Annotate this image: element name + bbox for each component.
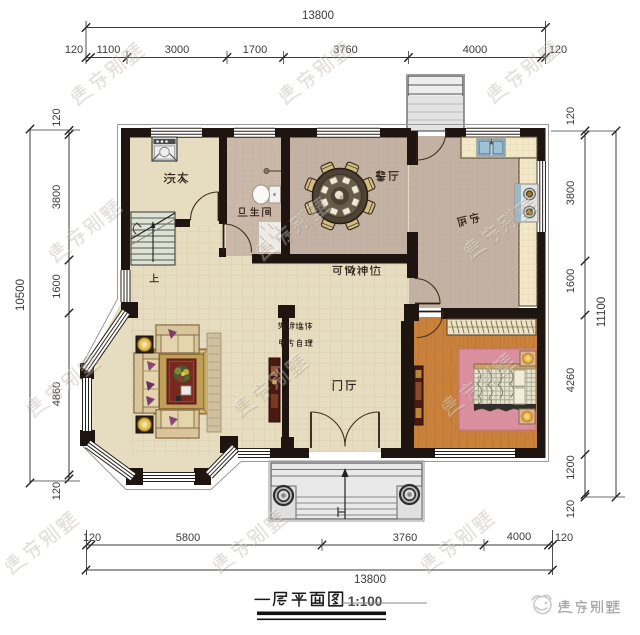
svg-text:3000: 3000 [165,44,189,56]
svg-text:120: 120 [83,532,101,544]
svg-text:10500: 10500 [15,279,27,311]
svg-text:120: 120 [565,107,577,125]
svg-text:3800: 3800 [565,181,577,205]
svg-text:4000: 4000 [507,531,531,543]
svg-text:120: 120 [555,532,573,544]
svg-text:1600: 1600 [565,269,577,293]
svg-text:120: 120 [51,482,63,500]
svg-text:1200: 1200 [565,455,577,479]
svg-text:4000: 4000 [463,44,487,56]
svg-text:3760: 3760 [393,532,417,544]
svg-text:120: 120 [65,44,83,56]
svg-text:120: 120 [51,108,63,126]
svg-text:13800: 13800 [354,574,386,586]
svg-text:3800: 3800 [51,185,63,209]
svg-text:4260: 4260 [565,368,577,392]
svg-text:1600: 1600 [51,274,63,298]
svg-text:1:100: 1:100 [348,594,383,609]
svg-text:5800: 5800 [176,532,200,544]
svg-text:1700: 1700 [243,44,267,56]
svg-text:11100: 11100 [596,297,608,327]
svg-text:120: 120 [565,500,577,518]
svg-text:1100: 1100 [97,44,121,56]
svg-text:13800: 13800 [302,10,334,22]
